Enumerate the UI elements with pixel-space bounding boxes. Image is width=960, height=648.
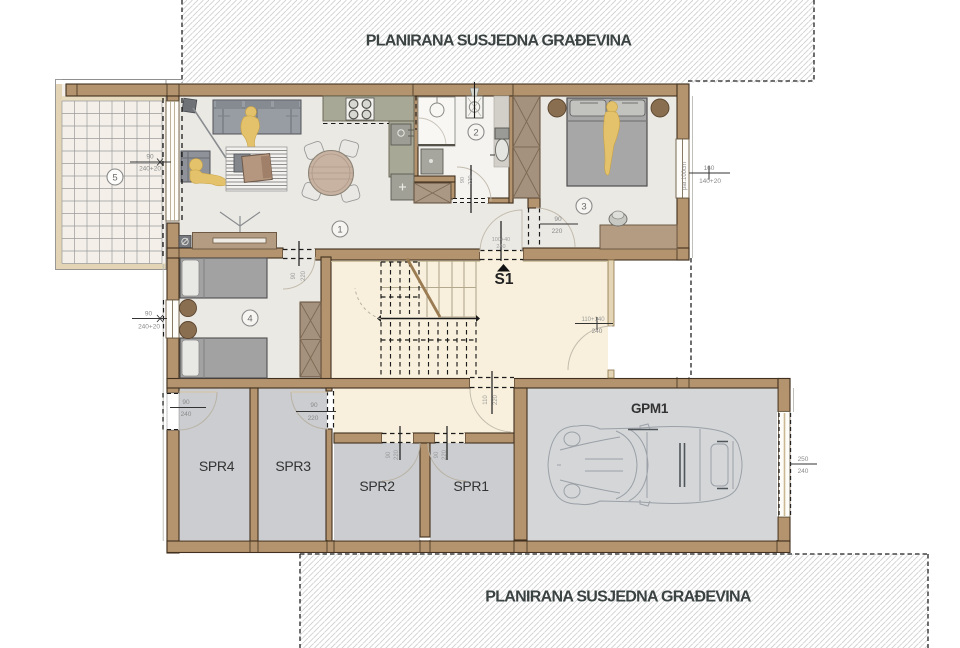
svg-text:240+20: 240+20 — [138, 324, 160, 331]
svg-text:90: 90 — [310, 402, 318, 409]
svg-text:220: 220 — [468, 175, 474, 184]
svg-text:220: 220 — [493, 394, 499, 405]
svg-text:90: 90 — [434, 451, 440, 458]
svg-text:PLANIRANA SUSJEDNA GRAĐEVINA: PLANIRANA SUSJEDNA GRAĐEVINA — [485, 589, 752, 606]
svg-text:SPR3: SPR3 — [275, 458, 311, 474]
svg-text:90: 90 — [146, 154, 154, 161]
svg-text:240: 240 — [592, 328, 603, 335]
svg-text:110+140: 110+140 — [581, 317, 605, 323]
svg-text:220: 220 — [301, 270, 307, 281]
svg-text:250: 250 — [798, 456, 809, 463]
svg-text:240: 240 — [181, 411, 192, 418]
svg-text:240: 240 — [496, 244, 505, 250]
svg-text:90: 90 — [554, 216, 562, 223]
svg-text:par.100cm: par.100cm — [682, 162, 688, 190]
svg-text:1: 1 — [337, 225, 342, 236]
svg-text:160: 160 — [704, 165, 715, 172]
svg-text:5: 5 — [112, 173, 117, 184]
svg-text:140+20: 140+20 — [699, 178, 721, 185]
svg-text:240: 240 — [798, 468, 809, 475]
svg-text:SPR2: SPR2 — [359, 478, 395, 494]
svg-text:GPM1: GPM1 — [631, 401, 669, 416]
svg-text:240+20: 240+20 — [139, 166, 161, 173]
svg-text:90: 90 — [386, 451, 392, 458]
svg-text:3: 3 — [581, 202, 586, 213]
svg-text:90: 90 — [460, 177, 466, 183]
svg-text:220: 220 — [442, 449, 448, 460]
svg-text:90: 90 — [291, 272, 297, 279]
svg-text:100+40: 100+40 — [492, 237, 511, 243]
svg-text:2: 2 — [473, 128, 478, 139]
svg-text:90: 90 — [182, 399, 190, 406]
svg-text:90: 90 — [145, 311, 153, 318]
svg-text:4: 4 — [247, 314, 252, 325]
svg-text:SPR1: SPR1 — [453, 478, 489, 494]
svg-text:S1: S1 — [495, 271, 514, 288]
svg-text:PLANIRANA SUSJEDNA GRAĐEVINA: PLANIRANA SUSJEDNA GRAĐEVINA — [366, 33, 633, 50]
svg-text:220: 220 — [394, 449, 400, 460]
svg-text:220: 220 — [552, 228, 563, 235]
svg-text:220: 220 — [308, 415, 319, 422]
svg-text:SPR4: SPR4 — [199, 458, 235, 474]
svg-text:110: 110 — [483, 395, 489, 405]
